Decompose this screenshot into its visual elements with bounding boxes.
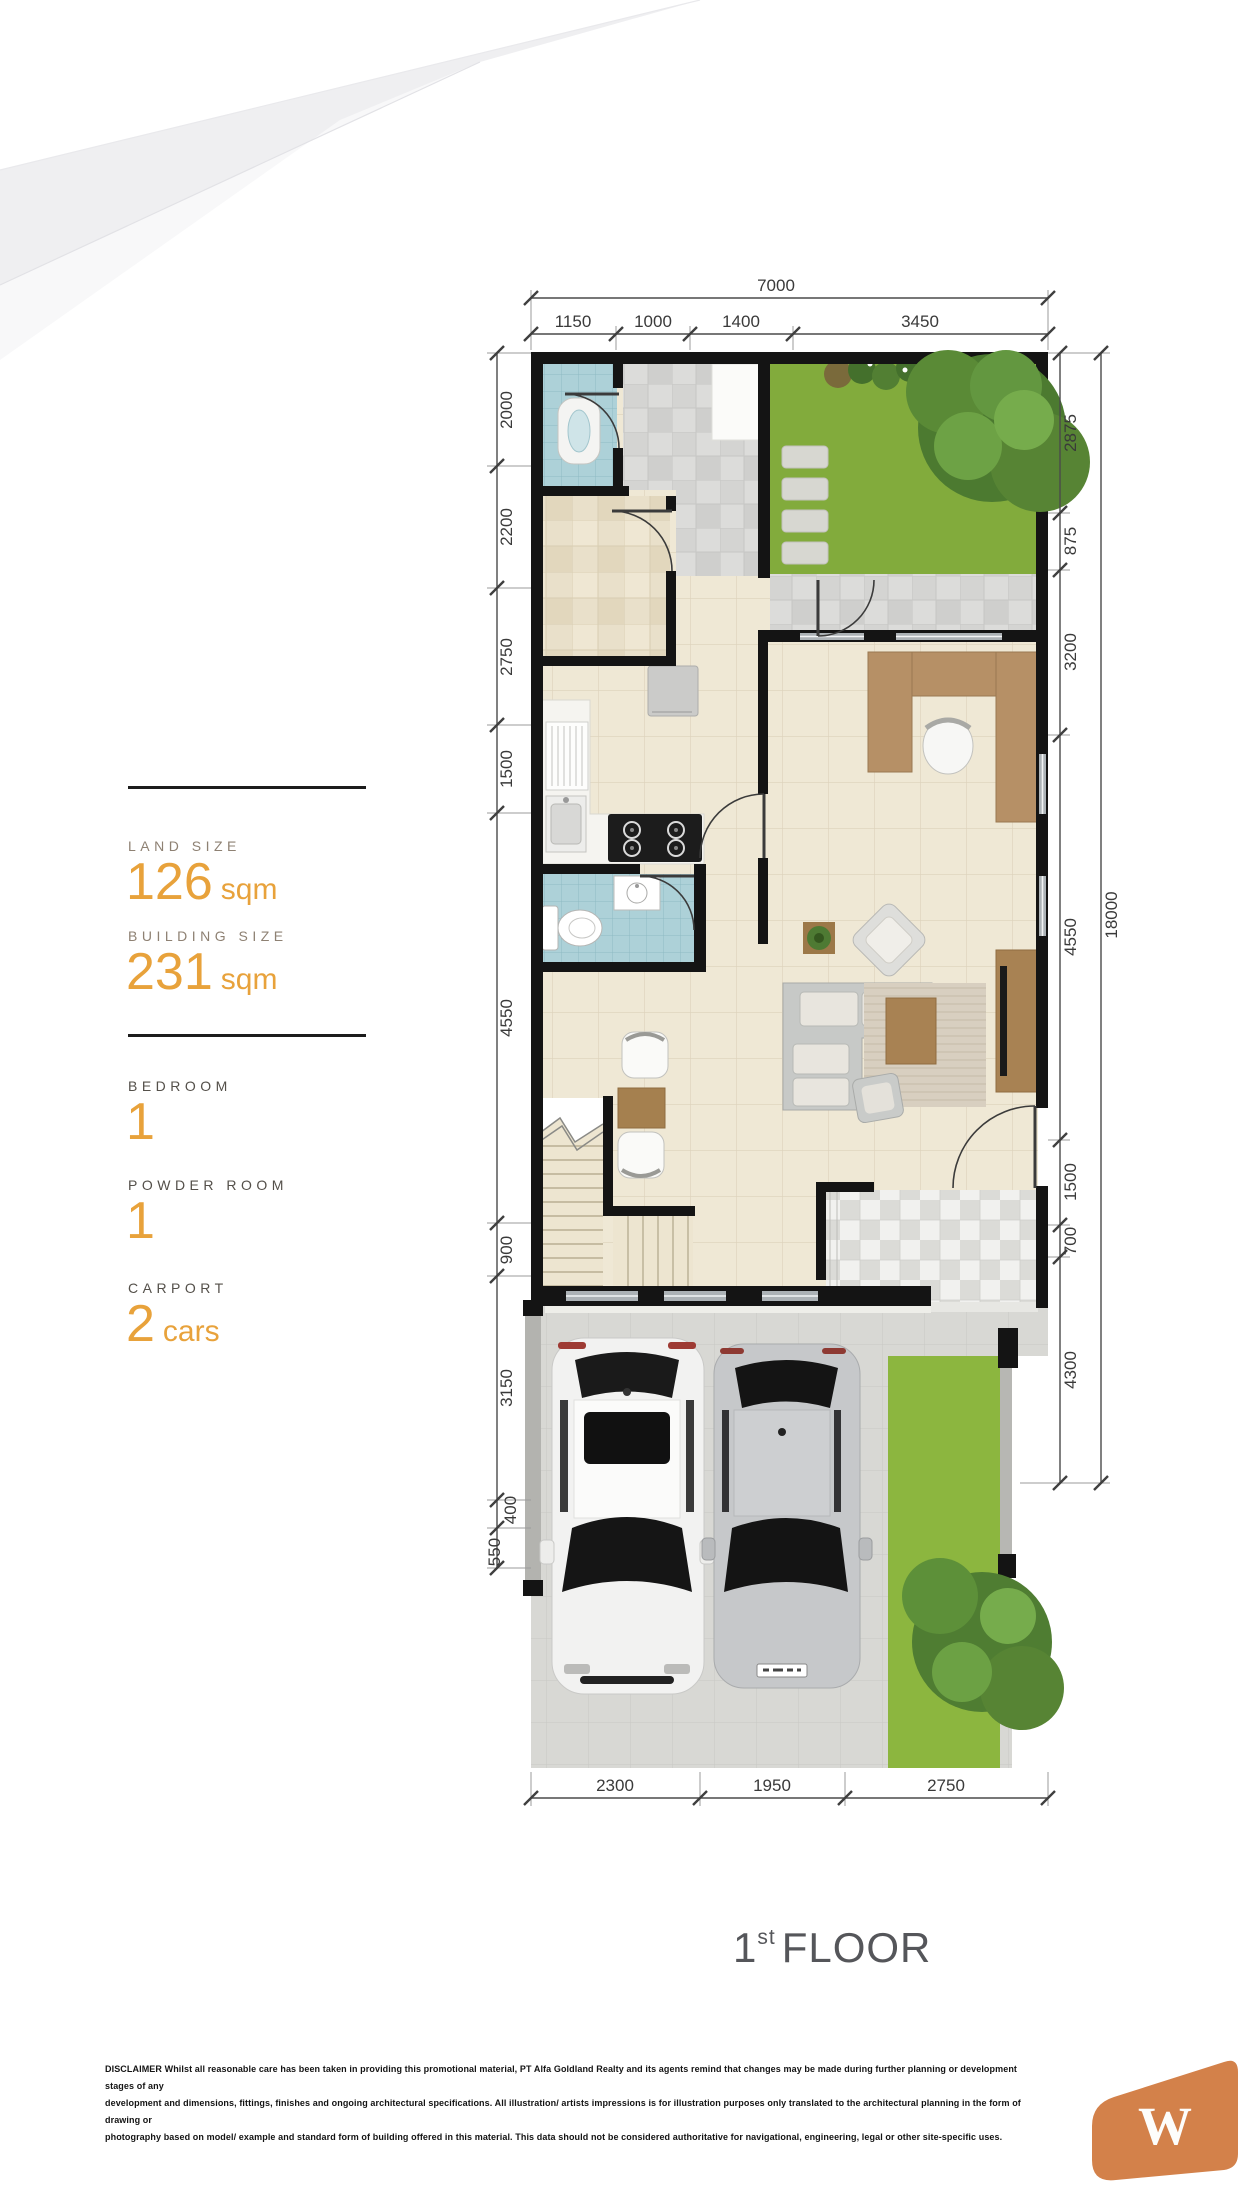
dim-top-2: 1400: [722, 312, 760, 331]
brand-logo: W: [1086, 2052, 1246, 2192]
dim-right-4: 1500: [1061, 1163, 1080, 1201]
basin-icon: [614, 876, 660, 910]
dim-left-4: 4550: [497, 999, 516, 1037]
building-size-value: 231sqm: [126, 942, 277, 1002]
dim-left-7: 400: [501, 1496, 520, 1524]
dim-top-0: 1150: [555, 312, 592, 331]
laundry-counter: [712, 364, 764, 440]
dim-bottom-1: 1950: [753, 1776, 791, 1795]
window-sill: [545, 1306, 931, 1313]
tv-icon: [1000, 966, 1007, 1076]
disclaimer: DISCLAIMER Whilst all reasonable care ha…: [105, 2061, 1040, 2146]
floor-ordinal: st: [757, 1926, 775, 1949]
maid-room-floor: [539, 496, 670, 658]
armchair-small: [852, 1072, 905, 1123]
fridge-icon: [648, 666, 698, 716]
coffee-table: [886, 998, 936, 1064]
dim-right-0: 2875: [1061, 414, 1080, 452]
foyer-floor: [826, 1190, 1038, 1302]
floor-word: FLOOR: [782, 1924, 932, 1971]
terrace-floor: [770, 574, 1036, 632]
dim-left-3: 1500: [497, 750, 516, 788]
land-size-value: 126sqm: [126, 852, 277, 912]
dim-right-3: 4550: [1061, 918, 1080, 956]
dim-right-1: 875: [1061, 527, 1080, 555]
dim-left-8: 550: [485, 1538, 504, 1566]
gray-car: [702, 1344, 872, 1688]
disclaimer-line-3: photography based on model/ example and …: [105, 2129, 1040, 2146]
disclaimer-line-2: development and dimensions, fittings, fi…: [105, 2095, 1040, 2129]
dim-bottom-0: 2300: [596, 1776, 634, 1795]
logo-letter: W: [1138, 2096, 1192, 2156]
white-car: [540, 1338, 714, 1694]
carport-value: 2cars: [126, 1294, 220, 1354]
dim-left-5: 900: [497, 1236, 516, 1264]
floor-number: 1: [733, 1924, 757, 1971]
tv-console: [996, 950, 1038, 1092]
dim-left-0: 2000: [497, 391, 516, 429]
floor-plan: 7000 1150 1000 1400 3450 2000 2200 2750 …: [440, 240, 1230, 1840]
dim-left-2: 2750: [497, 638, 516, 676]
brochure-page: LAND SIZE 126sqm BUILDING SIZE 231sqm BE…: [0, 0, 1249, 2192]
disclaimer-line-1: DISCLAIMER Whilst all reasonable care ha…: [105, 2061, 1040, 2095]
squat-toilet-icon: [558, 398, 600, 464]
dim-overall-height: 18000: [1102, 891, 1121, 938]
divider-top: [128, 786, 366, 789]
dim-left-6: 3150: [497, 1369, 516, 1407]
desk-chair-icon: [923, 718, 973, 774]
dim-right-5: 700: [1061, 1227, 1080, 1255]
divider-bottom: [128, 1034, 366, 1037]
floor-title: 1stFLOOR: [733, 1924, 931, 1972]
dim-top-1: 1000: [634, 312, 672, 331]
dim-top-3: 3450: [901, 312, 939, 331]
bedroom-value: 1: [126, 1092, 155, 1152]
stove-icon: [608, 814, 702, 862]
powder-room-value: 1: [126, 1191, 155, 1251]
dim-bottom-2: 2750: [927, 1776, 965, 1795]
left-fence: [525, 1308, 541, 1588]
side-fence: [1000, 1356, 1012, 1556]
plant-table: [803, 922, 835, 954]
dim-overall-width: 7000: [757, 276, 795, 295]
dim-right-6: 4300: [1061, 1351, 1080, 1389]
dim-left-1: 2200: [497, 508, 516, 546]
dining-set: [618, 1032, 668, 1178]
dim-right-2: 3200: [1061, 633, 1080, 671]
